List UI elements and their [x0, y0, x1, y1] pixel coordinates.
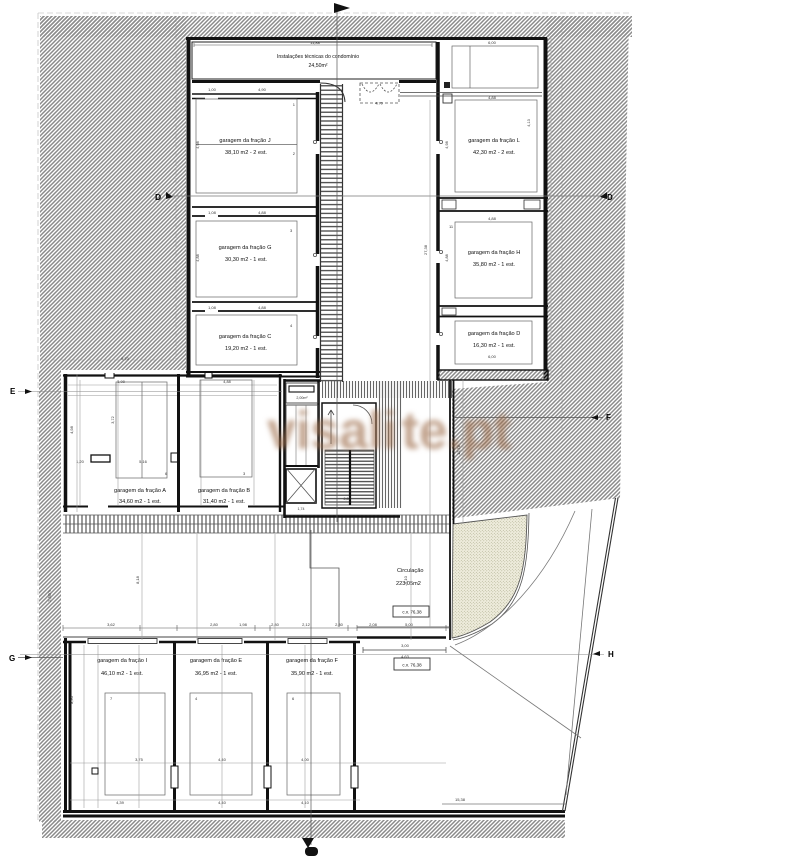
svg-text:garagem da fração B: garagem da fração B — [198, 488, 251, 494]
svg-text:2,80: 2,80 — [344, 497, 351, 501]
svg-text:16,30 m2 - 1 est.: 16,30 m2 - 1 est. — [473, 343, 515, 349]
svg-text:c.v. 76,38: c.v. 76,38 — [402, 610, 422, 615]
svg-text:garagem da fração I: garagem da fração I — [97, 658, 148, 664]
svg-text:4,39: 4,39 — [116, 800, 125, 805]
svg-text:4,88: 4,88 — [488, 216, 497, 221]
svg-text:4,88: 4,88 — [445, 254, 449, 261]
svg-text:36,95 m2 - 1 est.: 36,95 m2 - 1 est. — [195, 671, 237, 677]
svg-text:8,90: 8,90 — [69, 695, 74, 704]
svg-text:4,88: 4,88 — [258, 210, 267, 215]
svg-text:D: D — [607, 193, 613, 202]
svg-text:6,00: 6,00 — [488, 40, 497, 45]
svg-text:4,40: 4,40 — [218, 800, 227, 805]
svg-text:4,88: 4,88 — [223, 380, 230, 384]
svg-text:4,13: 4,13 — [527, 119, 531, 126]
svg-text:E: E — [10, 387, 16, 396]
svg-text:3: 3 — [243, 471, 246, 476]
svg-text:30,30 m2 - 1 est.: 30,30 m2 - 1 est. — [225, 257, 267, 263]
svg-text:2,50m: 2,50m — [47, 590, 52, 602]
svg-text:3,72: 3,72 — [111, 416, 115, 423]
svg-text:42,30 m2 - 2 est.: 42,30 m2 - 2 est. — [473, 150, 515, 156]
svg-text:2,08: 2,08 — [369, 622, 378, 627]
svg-text:4,98: 4,98 — [196, 141, 200, 148]
svg-text:31,40 m2 - 1 est.: 31,40 m2 - 1 est. — [203, 499, 245, 505]
svg-text:garagem da fração G: garagem da fração G — [219, 245, 272, 251]
svg-text:4: 4 — [290, 323, 293, 328]
svg-text:Circulação: Circulação — [397, 568, 423, 574]
svg-text:5,00: 5,00 — [405, 622, 414, 627]
svg-text:garagem da fração J: garagem da fração J — [219, 138, 271, 144]
svg-text:4,88: 4,88 — [196, 254, 200, 261]
svg-text:8,18: 8,18 — [135, 575, 140, 584]
svg-text:garagem da fração A: garagem da fração A — [114, 488, 166, 494]
svg-text:4,70: 4,70 — [375, 102, 382, 106]
svg-text:35,80 m2 - 1 est.: 35,80 m2 - 1 est. — [473, 262, 515, 268]
svg-text:H: H — [608, 650, 614, 659]
svg-text:2,80: 2,80 — [210, 622, 219, 627]
svg-text:3,00: 3,00 — [401, 643, 410, 648]
svg-text:223,05m2: 223,05m2 — [396, 581, 421, 587]
svg-text:11,88: 11,88 — [310, 40, 320, 45]
svg-text:2,80: 2,80 — [271, 622, 280, 627]
svg-text:1,98: 1,98 — [239, 622, 248, 627]
svg-text:19,20 m2 - 1 est.: 19,20 m2 - 1 est. — [225, 346, 267, 352]
svg-text:6,00: 6,00 — [488, 354, 497, 359]
svg-text:35,90 m2 - 1 est.: 35,90 m2 - 1 est. — [291, 671, 333, 677]
svg-text:4,00: 4,00 — [301, 757, 310, 762]
svg-text:3,75: 3,75 — [135, 757, 144, 762]
svg-text:5,16: 5,16 — [139, 459, 148, 464]
svg-text:46,10 m2 - 1 est.: 46,10 m2 - 1 est. — [101, 671, 143, 677]
svg-text:4,98: 4,98 — [69, 425, 74, 434]
svg-text:garagem da fração C: garagem da fração C — [219, 334, 272, 340]
svg-text:G: G — [9, 654, 15, 663]
svg-text:1,74: 1,74 — [298, 507, 305, 511]
svg-text:F: F — [606, 413, 611, 422]
svg-text:1,08: 1,08 — [208, 210, 217, 215]
svg-text:9,70: 9,70 — [121, 356, 130, 361]
svg-text:11: 11 — [449, 224, 454, 229]
svg-text:garagem da fração D: garagem da fração D — [468, 331, 521, 337]
svg-text:7: 7 — [110, 696, 113, 701]
svg-text:38,10 m2 - 2 est.: 38,10 m2 - 2 est. — [225, 150, 267, 156]
svg-text:garagem da fração F: garagem da fração F — [286, 658, 339, 664]
svg-text:4,88: 4,88 — [488, 95, 497, 100]
svg-text:6,10: 6,10 — [403, 575, 408, 584]
svg-text:2,12: 2,12 — [302, 622, 311, 627]
svg-text:2,00m²: 2,00m² — [296, 396, 308, 400]
svg-text:4,88: 4,88 — [258, 305, 267, 310]
svg-text:1,00: 1,00 — [208, 87, 217, 92]
svg-text:2: 2 — [293, 151, 296, 156]
svg-text:garagem da fração H: garagem da fração H — [468, 250, 521, 256]
svg-text:c.v. 76,38: c.v. 76,38 — [402, 663, 422, 668]
svg-text:garagem da fração E: garagem da fração E — [190, 658, 243, 664]
svg-text:4,98: 4,98 — [445, 141, 449, 148]
svg-text:6: 6 — [165, 471, 168, 476]
svg-text:1,08: 1,08 — [208, 305, 217, 310]
svg-text:4: 4 — [195, 696, 198, 701]
svg-text:6: 6 — [292, 696, 295, 701]
svg-text:1,20: 1,20 — [76, 459, 85, 464]
svg-text:4,40: 4,40 — [218, 757, 227, 762]
svg-text:4,90: 4,90 — [258, 87, 267, 92]
svg-text:27,38: 27,38 — [423, 244, 428, 255]
svg-text:24,50m²: 24,50m² — [308, 63, 327, 69]
svg-text:4,10: 4,10 — [301, 800, 310, 805]
svg-text:D: D — [155, 192, 161, 202]
svg-text:3: 3 — [290, 228, 293, 233]
svg-text:3,62: 3,62 — [107, 622, 116, 627]
svg-text:1: 1 — [293, 102, 296, 107]
svg-text:garagem da fração L: garagem da fração L — [468, 138, 520, 144]
svg-text:34,60 m2 - 1 est.: 34,60 m2 - 1 est. — [119, 499, 161, 505]
svg-text:15,38: 15,38 — [455, 797, 466, 802]
svg-text:Instalações técnicas do condom: Instalações técnicas do condomínio — [277, 54, 359, 60]
